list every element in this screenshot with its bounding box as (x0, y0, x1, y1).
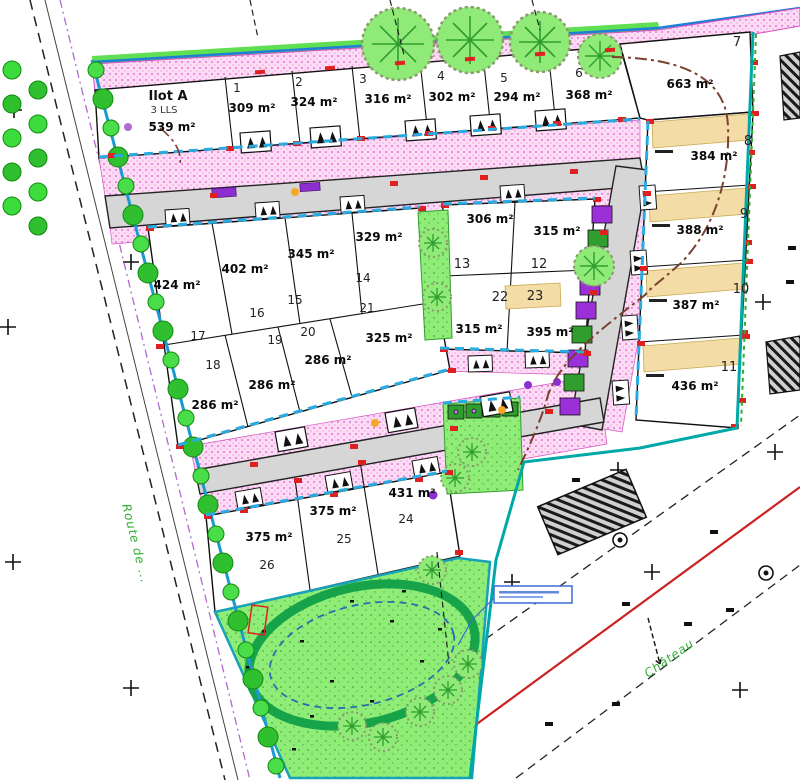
lot-4-area: 302 m² (429, 90, 476, 104)
lot-21-number: 21 (359, 301, 374, 315)
lot-22-number: 22 (492, 290, 509, 305)
lot-14-number: 14 (355, 271, 370, 285)
tree-icon (406, 698, 434, 726)
tree-icon (338, 712, 366, 740)
lot-24-number: 24 (398, 512, 413, 526)
site-plan-svg: Ilot A 3 LLS 539 m² 1 309 m² 2 324 m² 3 … (0, 0, 800, 780)
lot-19-number: 19 (267, 333, 282, 347)
lot-13-number: 13 (454, 257, 471, 272)
lot-20-area: 286 m² (305, 353, 352, 367)
lot-7-number: 7 (733, 35, 741, 50)
lot-20-number: 20 (300, 325, 315, 339)
existing-building (766, 336, 800, 394)
lot-16-area: 402 m² (222, 262, 269, 276)
lot-15-number: 15 (287, 293, 302, 307)
subdivision-site-plan: Ilot A 3 LLS 539 m² 1 309 m² 2 324 m² 3 … (0, 0, 800, 780)
orange-marker-dot (498, 406, 506, 414)
lot-3-number: 3 (359, 72, 367, 86)
lot-8-area: 384 m² (691, 149, 738, 163)
tree-icon (369, 723, 397, 751)
tree-icon (441, 464, 469, 492)
lot-25-area: 375 m² (310, 504, 357, 518)
ilot-a-units: 3 LLS (150, 105, 177, 116)
lot-13-area: 306 m² (467, 212, 514, 226)
lot-26-area: 375 m² (246, 530, 293, 544)
lot-12-area: 315 m² (534, 224, 581, 238)
lot-9-area: 388 m² (677, 223, 724, 237)
lot-25-number: 25 (336, 532, 351, 546)
lot-12-number: 12 (531, 257, 548, 272)
orange-marker-dot (291, 188, 299, 196)
tree-icon (574, 246, 614, 286)
lot-1-number: 1 (233, 81, 241, 95)
tree-icon (578, 34, 622, 78)
tree-icon (423, 283, 451, 311)
lot-18-number: 18 (205, 358, 220, 372)
lot-2-area: 324 m² (291, 95, 338, 109)
tree-icon (437, 7, 503, 73)
tree-icon (418, 556, 446, 584)
lot-10-area: 387 m² (673, 298, 720, 312)
lot-3-area: 316 m² (365, 92, 412, 106)
lot-24-area: 431 m² (389, 486, 436, 500)
lot-5-area: 294 m² (494, 90, 541, 104)
purple-marker-dot (124, 123, 132, 131)
lot-22-area: 315 m² (456, 322, 503, 336)
lot-8-number: 8 (744, 134, 752, 149)
lot-15-area: 345 m² (288, 247, 335, 261)
ilot-a-name: Ilot A (148, 89, 187, 104)
lot-9-number: 9 (740, 207, 748, 222)
purple-marker-dot (553, 378, 561, 386)
lot-10-number: 10 (733, 282, 750, 297)
existing-building (780, 52, 800, 120)
orange-marker-dot (371, 419, 379, 427)
lot-26-number: 26 (259, 558, 274, 572)
lot-21-area: 325 m² (366, 331, 413, 345)
lot-6-number: 6 (575, 66, 583, 80)
lot-6-area: 368 m² (566, 88, 613, 102)
lot-18-area: 286 m² (192, 398, 239, 412)
tree-icon (362, 8, 434, 80)
lot-11-area: 436 m² (672, 379, 719, 393)
ilot-a-area: 539 m² (149, 120, 196, 134)
lot-16-number: 16 (249, 306, 264, 320)
lot-23-number: 23 (527, 289, 544, 304)
manhole-icon (613, 533, 627, 547)
lot-7-area: 663 m² (667, 77, 714, 91)
purple-marker-dot (524, 381, 532, 389)
tree-icon (458, 438, 486, 466)
lot-11-number: 11 (721, 360, 738, 375)
lot-14-area: 329 m² (356, 230, 403, 244)
lot-4-number: 4 (437, 69, 445, 83)
manhole-icon (759, 566, 773, 580)
lot-17-area: 424 m² (154, 278, 201, 292)
tree-icon (454, 650, 482, 678)
tree-icon (419, 229, 447, 257)
lot-17-number: 17 (190, 329, 205, 343)
lot-23-area: 395 m² (527, 325, 574, 339)
lot-2-number: 2 (295, 75, 303, 89)
lot-5-number: 5 (500, 71, 508, 85)
lot-19-area: 286 m² (249, 378, 296, 392)
tree-icon (434, 676, 462, 704)
tree-icon (510, 12, 570, 72)
lot-1-area: 309 m² (229, 101, 276, 115)
